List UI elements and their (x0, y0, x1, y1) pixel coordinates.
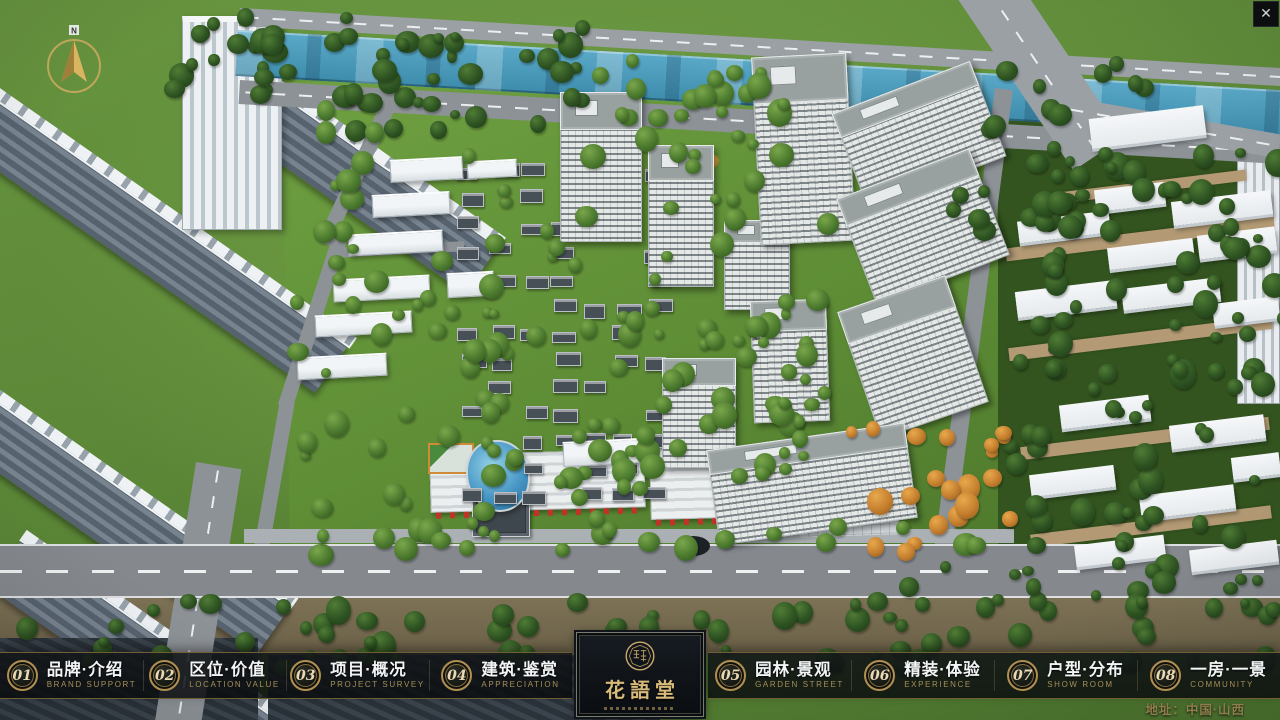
tree (1207, 275, 1221, 289)
tree (540, 223, 555, 239)
tree (1051, 169, 1065, 183)
tree (850, 598, 862, 611)
tree (1048, 104, 1072, 125)
tree (1221, 525, 1245, 550)
tree (897, 543, 915, 561)
menu-label-en: LOCATION VALUE (189, 681, 280, 689)
tree (316, 121, 336, 144)
tree (806, 289, 829, 312)
menu-item-views[interactable]: 08 一房·一景COMMUNITY (1137, 653, 1280, 698)
tree (966, 537, 986, 554)
tree (431, 251, 453, 271)
tree (939, 429, 955, 446)
tree (846, 426, 857, 438)
app-window: N ✕ 01 品牌·介绍BRAND SUPPORT 02 区位·价值LOCATI… (0, 0, 1280, 720)
tree (649, 273, 661, 286)
tree (318, 626, 335, 643)
tree (796, 343, 818, 367)
midrise-slab (389, 156, 463, 183)
tree (261, 34, 283, 55)
tree (1265, 602, 1280, 617)
menu-badge-icon: 01 (7, 660, 38, 691)
menu-label-en: COMMUNITY (1190, 681, 1267, 689)
tree (1106, 162, 1117, 173)
tree (1142, 400, 1153, 411)
menu-badge-icon: 02 (149, 660, 180, 691)
tree (1223, 218, 1239, 236)
tree (308, 544, 334, 566)
midrise-slab (467, 159, 518, 180)
tree (1002, 511, 1017, 527)
tree (313, 220, 336, 243)
tree (1193, 290, 1218, 318)
tree (626, 311, 645, 331)
tree (655, 396, 671, 414)
tree (1022, 566, 1034, 576)
tree (674, 109, 689, 123)
tree (1116, 540, 1126, 551)
tree (1172, 361, 1188, 378)
menu-label-zh: 一房·一景 (1190, 662, 1267, 679)
tree (1208, 363, 1224, 379)
tree (818, 386, 832, 400)
tree (364, 636, 378, 649)
courtyard-house (553, 409, 578, 424)
tree (955, 492, 979, 518)
tree (816, 533, 836, 551)
tree (1162, 181, 1181, 198)
tree (347, 244, 359, 254)
menu-item-location[interactable]: 02 区位·价值LOCATION VALUE (143, 653, 286, 698)
tree (716, 106, 728, 118)
tree (1046, 360, 1062, 378)
brand-caption-line (604, 707, 676, 710)
tree (779, 463, 792, 475)
tree (747, 73, 770, 99)
tree (481, 464, 506, 488)
tree (1048, 331, 1073, 357)
tree (895, 619, 908, 632)
tree (662, 369, 684, 392)
courtyard-house (553, 379, 578, 394)
tree (404, 611, 424, 632)
tree (1193, 144, 1214, 168)
tree (592, 67, 609, 84)
tree (580, 319, 598, 339)
tree (339, 28, 358, 45)
project-address: 地址：中国·山西 (1145, 699, 1245, 718)
menu-badge-icon: 06 (864, 660, 895, 691)
residential-tower (648, 145, 714, 287)
tree (1235, 574, 1247, 585)
tree (758, 337, 769, 348)
tree (984, 438, 999, 452)
tree (1129, 411, 1143, 424)
courtyard-house (556, 352, 581, 366)
tree (332, 273, 346, 286)
tree (1006, 453, 1027, 474)
tree (1210, 332, 1222, 342)
menu-badge-icon: 04 (441, 660, 472, 691)
tree (1105, 400, 1122, 418)
tree (428, 323, 447, 339)
courtyard-house (550, 276, 573, 288)
nav-strip-left: 01 品牌·介绍BRAND SUPPORT 02 区位·价值LOCATION V… (0, 652, 572, 699)
tree (726, 192, 740, 206)
tree (368, 438, 386, 458)
tree (237, 8, 254, 27)
tree (489, 309, 499, 318)
courtyard-house (457, 247, 478, 260)
menu-label-zh: 建筑·鉴赏 (481, 662, 559, 679)
tree (708, 619, 729, 643)
courtyard-house (584, 381, 605, 393)
tree (1027, 537, 1047, 554)
tree (467, 517, 478, 530)
tree (254, 69, 274, 86)
tree (297, 431, 316, 452)
tree (568, 257, 583, 273)
tree (1070, 498, 1095, 526)
tree (1098, 364, 1118, 383)
tree (487, 444, 501, 458)
tree (1251, 372, 1275, 397)
tree (186, 58, 198, 71)
tree (1136, 596, 1147, 609)
tree (108, 619, 124, 634)
tree (984, 115, 1006, 137)
tree (654, 329, 664, 338)
courtyard-house (526, 276, 549, 290)
tree (180, 594, 197, 608)
tree (326, 596, 351, 625)
tree (394, 537, 417, 561)
menu-label-zh: 品牌·介绍 (47, 662, 137, 679)
tree (1009, 569, 1021, 580)
tree (372, 59, 396, 82)
menu-badge-icon: 08 (1150, 660, 1181, 691)
tree (867, 488, 893, 514)
brand-logo-panel[interactable]: 花語堂 (576, 632, 704, 717)
tree (1026, 154, 1048, 173)
menu-item-interior[interactable]: 06 精装·体验EXPERIENCE (851, 653, 994, 698)
tree (1246, 245, 1271, 267)
nav-strip-right: 05 园林·景观GARDEN STREET 06 精装·体验EXPERIENCE… (708, 652, 1280, 699)
tree (1026, 578, 1041, 595)
masterplan-3d-view[interactable] (0, 0, 1280, 720)
tree (1143, 506, 1164, 525)
tree (781, 364, 798, 379)
tree (669, 142, 688, 162)
tree (458, 63, 483, 85)
tree (279, 64, 297, 80)
tree (383, 483, 405, 505)
tree (580, 144, 606, 169)
tree (915, 597, 931, 612)
menu-label-zh: 项目·概况 (330, 662, 425, 679)
tree (1075, 189, 1090, 202)
tree (1031, 426, 1050, 446)
menu-label-en: APPRECIATION (481, 681, 559, 689)
tree (444, 305, 460, 319)
tree (644, 301, 660, 316)
tree (952, 187, 969, 204)
tree (478, 526, 489, 537)
tree (1070, 300, 1082, 313)
tree (1219, 198, 1235, 214)
tree (345, 296, 361, 314)
courtyard-house (554, 299, 577, 312)
tree (199, 594, 221, 613)
courtyard-house (552, 332, 576, 344)
tree (867, 537, 884, 556)
tree (755, 466, 770, 481)
tree (98, 637, 108, 647)
tree (1048, 263, 1064, 278)
menu-item-project[interactable]: 03 项目·概况PROJECT SURVEY (286, 653, 429, 698)
tree (530, 115, 546, 133)
tree (1205, 598, 1224, 618)
tree (553, 29, 565, 42)
tree (427, 73, 440, 85)
tree (626, 54, 639, 68)
tree (710, 194, 721, 204)
tree (992, 594, 1003, 606)
tree (946, 202, 961, 218)
tree (817, 213, 838, 235)
menu-label-zh: 园林·景观 (755, 662, 844, 679)
tree (164, 80, 184, 97)
tree (437, 425, 460, 447)
tree (712, 402, 737, 429)
menu-item-architecture[interactable]: 04 建筑·鉴赏APPRECIATION (429, 653, 572, 698)
tree (1047, 141, 1060, 156)
tree (465, 106, 486, 129)
tree (929, 515, 948, 535)
tree (777, 98, 790, 110)
tree (517, 616, 539, 637)
tree (489, 530, 500, 542)
tree (340, 12, 353, 24)
tree (1128, 75, 1143, 92)
menu-label-en: GARDEN STREET (755, 681, 844, 689)
tree (705, 331, 724, 349)
menu-item-garden[interactable]: 05 园林·景观GARDEN STREET (708, 653, 851, 698)
tree (16, 617, 37, 640)
tree (1008, 623, 1032, 647)
tree (345, 120, 367, 142)
courtyard-house (524, 463, 543, 474)
tree (710, 232, 734, 257)
tree (1047, 191, 1072, 214)
tree (1088, 382, 1100, 396)
menu-label-en: PROJECT SURVEY (330, 681, 425, 689)
tree (290, 295, 304, 310)
menu-label-zh: 区位·价值 (189, 662, 280, 679)
tree (845, 607, 870, 632)
tree (1152, 571, 1176, 594)
tree (744, 170, 765, 191)
tree (901, 487, 921, 505)
courtyard-house (462, 193, 485, 207)
tree (1133, 443, 1157, 471)
tree (287, 343, 308, 361)
tree (336, 169, 361, 193)
tree (333, 221, 353, 242)
tree (344, 83, 363, 105)
courtyard-house (494, 492, 517, 503)
tree (550, 61, 574, 84)
tree (626, 78, 646, 100)
tree (1109, 56, 1124, 72)
menu-label-zh: 户型·分布 (1047, 662, 1124, 679)
tree (365, 122, 384, 143)
courtyard-house (462, 488, 483, 502)
tree (609, 359, 628, 376)
tree (996, 61, 1018, 81)
menu-badge-icon: 05 (715, 660, 746, 691)
tree (640, 454, 665, 479)
tree (632, 481, 648, 496)
tree (1054, 312, 1073, 328)
tree (1091, 590, 1101, 600)
tree (694, 84, 716, 107)
tree (669, 439, 687, 458)
tree (563, 88, 581, 107)
tree (636, 426, 655, 445)
tree (1239, 326, 1256, 342)
tree (1013, 354, 1028, 370)
compass-icon: N (42, 24, 106, 98)
courtyard-house (523, 436, 542, 451)
tree (589, 510, 605, 527)
tree (317, 529, 329, 543)
tree (430, 121, 447, 140)
tree (360, 93, 383, 113)
tree (1176, 251, 1199, 274)
tree (1112, 557, 1125, 570)
tree (940, 561, 951, 573)
tree (731, 130, 745, 142)
tree (311, 498, 333, 516)
menu-badge-icon: 03 (290, 660, 321, 691)
tree (300, 621, 312, 635)
courtyard-house (457, 216, 480, 229)
svg-text:N: N (71, 27, 77, 36)
tree (995, 426, 1012, 440)
tree (1167, 276, 1184, 293)
tree (519, 49, 535, 63)
tree (235, 632, 255, 652)
tree (1100, 220, 1121, 241)
tree (983, 469, 1002, 487)
courtyard-house (522, 491, 547, 505)
tree (485, 234, 505, 252)
tree (373, 527, 395, 550)
tree (207, 17, 220, 31)
tree (1227, 379, 1242, 394)
tree (731, 468, 747, 484)
tree (1106, 278, 1127, 301)
tree (747, 139, 759, 150)
menu-badge-icon: 07 (1007, 660, 1038, 691)
midrise-slab (371, 191, 450, 218)
midrise-slab (296, 353, 387, 381)
tree (587, 418, 602, 432)
tree (1065, 156, 1076, 167)
menu-item-floorplans[interactable]: 07 户型·分布SHOW ROOM (994, 653, 1137, 698)
brand-seal-icon (624, 640, 656, 672)
tree (947, 626, 970, 646)
tree (1199, 427, 1214, 443)
tree (769, 143, 794, 167)
tree (1222, 237, 1247, 260)
tree (804, 398, 820, 412)
tree (766, 527, 782, 541)
menu-label-en: SHOW ROOM (1047, 681, 1124, 689)
courtyard-house (520, 189, 542, 202)
courtyard-house (521, 163, 545, 176)
close-button[interactable]: ✕ (1253, 1, 1279, 27)
tree (1138, 467, 1163, 493)
tree (575, 20, 590, 36)
tree (745, 316, 768, 338)
menu-label-en: BRAND SUPPORT (47, 681, 137, 689)
tree (1249, 475, 1260, 485)
tree (364, 270, 389, 293)
courtyard-house (584, 304, 605, 319)
tree (384, 119, 403, 138)
tree (1235, 148, 1246, 158)
menu-label-en: EXPERIENCE (904, 681, 981, 689)
tree (778, 294, 796, 310)
menu-label-zh: 精装·体验 (904, 662, 981, 679)
tree (450, 32, 460, 41)
menu-item-brand[interactable]: 01 品牌·介绍BRAND SUPPORT (0, 653, 143, 698)
courtyard-house (462, 406, 482, 418)
tree (1132, 178, 1154, 203)
tree (1192, 515, 1207, 533)
tree (772, 602, 797, 630)
tree (208, 54, 219, 67)
brand-title: 花語堂 (600, 674, 680, 703)
tree (661, 251, 672, 262)
tree (147, 604, 160, 617)
tree (792, 430, 808, 448)
tree (328, 255, 345, 270)
tree (907, 428, 926, 445)
courtyard-house (526, 406, 549, 418)
tree (398, 406, 415, 422)
